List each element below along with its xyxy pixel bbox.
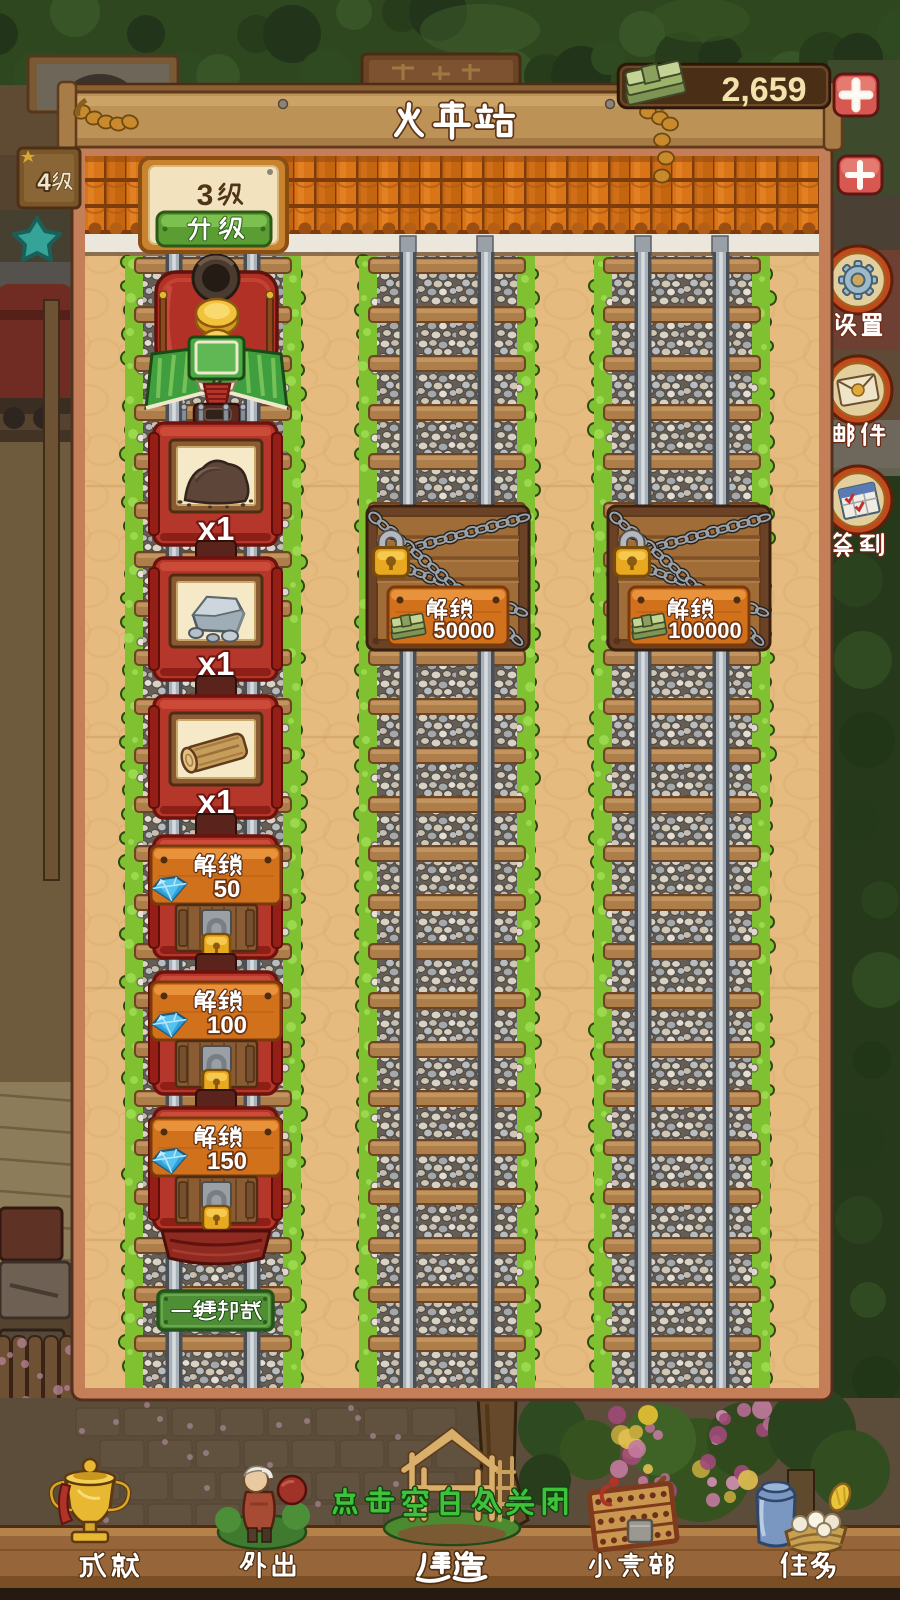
svg-text:4: 4 bbox=[37, 169, 51, 196]
svg-text:50: 50 bbox=[214, 876, 241, 903]
svg-text:150: 150 bbox=[207, 1148, 247, 1175]
svg-text:100000: 100000 bbox=[668, 618, 741, 643]
svg-text:2,659: 2,659 bbox=[721, 71, 806, 109]
svg-text:100: 100 bbox=[207, 1012, 247, 1039]
svg-text:50000: 50000 bbox=[433, 618, 494, 643]
svg-text:3: 3 bbox=[197, 179, 214, 212]
